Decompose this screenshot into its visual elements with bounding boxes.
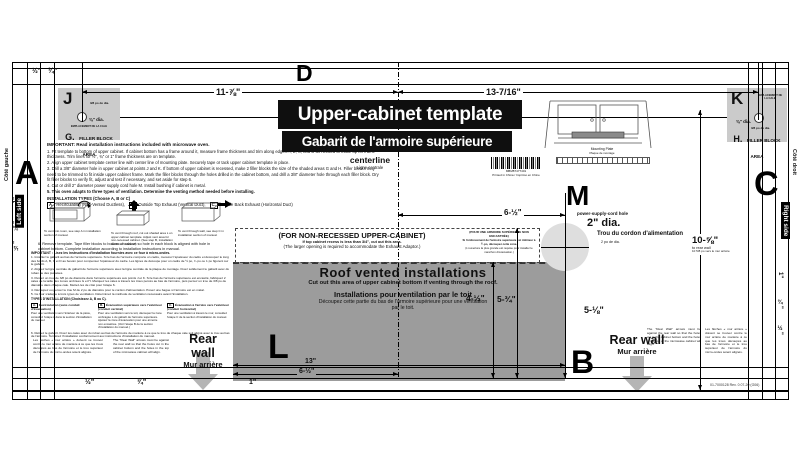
- point-m-letter: M: [566, 182, 588, 210]
- template-title-fr: Gabarit de l'armoire supérieure: [282, 131, 512, 152]
- trim-line: [12, 62, 13, 400]
- to-rear-wall-dim: 10-⅝" to rear wall 10 5/8 po vers le mur…: [691, 234, 731, 255]
- trim-line: [12, 62, 788, 63]
- arrowhead: [698, 110, 702, 115]
- type-fr-c: C. Évacuation à l'arrière vers l'extérie…: [167, 303, 229, 330]
- trim-line: [54, 62, 55, 400]
- trim-left-1-label: 1": [13, 197, 19, 203]
- power-cord-hole-label-fr: Trou du cordon d'alimentation: [597, 231, 689, 237]
- arrowhead: [233, 363, 238, 367]
- instructions-french: IMPORTANT : Lisez les instructions d'ins…: [31, 251, 231, 340]
- rear-note-en-left: The "Rear Wall" arrows must be against t…: [113, 339, 169, 354]
- trim-bottom-12-label: ½": [85, 379, 94, 386]
- instruction-step-4: 4. Cut or drill 2" diameter power supply…: [47, 183, 379, 188]
- installation-types-fr-row: A. Recirculation (sans conduit d'évacuat…: [31, 303, 231, 330]
- j-dia-fr: 3/8 po de dia.: [90, 101, 117, 105]
- rear-wall-line: [12, 390, 788, 392]
- mounting-plate-label-fr: Plaque de montage: [572, 151, 632, 155]
- to-rear-wall-fr: 10 5/8 po vers le mur arrière: [692, 250, 730, 254]
- mounting-plate-ruler: [556, 157, 650, 164]
- trim-line: [762, 62, 763, 400]
- edge-c-letter: C: [754, 167, 778, 201]
- filler-block-area-g: J 3/8 po de dia. ⅜" dia. EMPLACEMENT DE …: [58, 88, 120, 140]
- type-fr-b: B. Évacuation supérieure vers l'extérieu…: [98, 303, 162, 330]
- back-exhaust-vent-icon: [178, 200, 234, 224]
- rear-wall-arrow-right-stem: [630, 356, 644, 376]
- trim-top-threequarter-label: ¾": [46, 68, 59, 75]
- trim-line: [12, 399, 788, 400]
- k-hole-line: [758, 63, 759, 120]
- non-recessed-en-line2: (The larger opening is required to accom…: [246, 244, 458, 249]
- k-filler-area-label: H. FILLER BLOCK AREA: [728, 130, 786, 162]
- instruction-step-2: 2. Align upper cabinet template center l…: [47, 160, 379, 165]
- arrowhead: [82, 90, 87, 94]
- arrowhead: [491, 373, 495, 378]
- trim-line: [40, 62, 41, 400]
- rear-note-fr-left: Les flèches « mur arrière » doivent se t…: [33, 339, 103, 354]
- rear-note-fr-right: Les flèches « mur arrière » doivent se t…: [705, 328, 747, 355]
- non-recessed-fr-line1: Si l'enfoncement de l'armoire supérieure…: [462, 238, 536, 246]
- arrowhead: [393, 372, 398, 376]
- dim-line-6-12-top: [398, 215, 565, 216]
- rear-wall-left-fr: Mur arrière: [176, 361, 230, 369]
- cord-hole-vertical-line: [565, 193, 566, 378]
- trim-top-half-label: ½": [30, 68, 43, 75]
- dim-6-12-top-label: 6-½": [502, 208, 524, 217]
- trim-line: [12, 367, 788, 368]
- area-g-letter: G.: [65, 132, 75, 142]
- non-recessed-en-title: (FOR NON-RECESSED UPPER-CABINET): [246, 231, 458, 240]
- cabinet-mounting-plate-figure: [542, 96, 654, 152]
- arrowhead: [515, 373, 519, 378]
- rear-wall-arrow-left-icon: [188, 374, 218, 390]
- mounting-plate-label: Mounting Plate Plaque de montage: [572, 147, 632, 155]
- arrowhead: [398, 213, 403, 217]
- trim-right-12-label: ½": [777, 326, 783, 335]
- rear-wall-right-en: Rear wall: [608, 334, 666, 348]
- power-cord-hole-dia-en: 2" dia.: [587, 217, 620, 229]
- dim-6-12-bottom-label: 6-½": [297, 368, 316, 375]
- upper-cabinet-template-sheet: J 3/8 po de dia. ⅜" dia. EMPLACEMENT DE …: [0, 0, 802, 452]
- side-label-right-side: Right side: [781, 202, 790, 239]
- vent-wall-figure: To vent through wall, see step C in inst…: [178, 200, 236, 246]
- dim-13-label: 13": [303, 358, 318, 365]
- roof-vent-sub-fr: Découpez cette partie du bas de l'armoir…: [318, 299, 488, 311]
- trim-line: [12, 68, 788, 69]
- trim-right-1-label: 1": [777, 272, 783, 278]
- trim-line: [775, 62, 776, 400]
- recirculating-vent-icon: [44, 200, 100, 224]
- side-label-cote-gauche: Côté gauche: [4, 148, 10, 181]
- arrowhead: [698, 385, 702, 390]
- centerline-label-fr: Ligne centrale: [338, 165, 402, 170]
- cord-hole-cross-line: [541, 247, 589, 248]
- area-h-letter: H.: [733, 134, 742, 144]
- arrowhead: [515, 228, 519, 233]
- rear-wall-label-left: Rear wall Mur arrière: [176, 333, 230, 369]
- instruction-fr-step-3: 3. Percez un trou de 3/8 po de diamètre …: [31, 277, 231, 288]
- dim-5-18-label: 5-⅛": [584, 305, 604, 315]
- trim-line: [27, 62, 28, 400]
- dim-13-716-label: 13-7/16": [484, 87, 523, 97]
- trim-bottom-34-label: ¾": [137, 379, 146, 386]
- power-cord-hole-dia-fr: 2 po de dia.: [601, 240, 620, 244]
- non-recessed-en: (FOR NON-RECESSED UPPER-CABINET) If top …: [246, 231, 458, 249]
- trim-left-12-label: ½": [13, 241, 19, 250]
- arrowhead: [563, 373, 567, 378]
- edge-d-letter: D: [296, 62, 312, 85]
- roof-vent-title-en: Roof vented installations: [263, 265, 543, 280]
- trim-line: [748, 62, 749, 400]
- vent-figures-row: To vent into room, see step A in install…: [44, 200, 236, 246]
- vent-roof-figure: To vent through roof, cut out shaded are…: [111, 200, 173, 246]
- arrowhead: [233, 372, 238, 376]
- k-cale-label: EMPLACEMENT DE LA CALE: [757, 94, 783, 100]
- rear-wall-right-fr: Mur arrière: [608, 348, 666, 356]
- trim-line: [12, 84, 788, 85]
- side-label-cote-droit: Côté droit: [791, 149, 797, 175]
- trim-left-34-label: ¾": [13, 221, 19, 230]
- rear-wall-left-en: Rear wall: [176, 333, 230, 361]
- arrowhead: [560, 363, 565, 367]
- installation-types-fr-heading: TYPES D'INSTALLATION (Choisissez A, B ou…: [31, 298, 231, 302]
- j-dia-en: ⅜" dia.: [89, 117, 104, 122]
- non-recessed-fr: (POUR UNE ARMOIRE SUPÉRIEURE NON ENCASTR…: [462, 230, 536, 254]
- filler-block-area-h: K EMPLACEMENT DE LA CALE ⅜" dia. 3/8 po …: [727, 88, 787, 142]
- instruction-step-3: 3. Drill a 3/8" diameter hole in upper c…: [47, 166, 379, 182]
- vent-caption-wall: To vent through wall, see step C in inst…: [178, 230, 236, 237]
- arrowhead: [398, 90, 403, 94]
- barcode: [491, 157, 541, 169]
- edge-b-letter: B: [571, 346, 593, 378]
- type-fr-c-body: Pour une ventilation à travers le mur, c…: [167, 312, 229, 319]
- rear-wall-label-right: Rear wall Mur arrière: [608, 334, 666, 356]
- non-recessed-cutout-box: (FOR NON-RECESSED UPPER-CABINET) If top …: [235, 228, 540, 263]
- non-recessed-fr-title: (POUR UNE ARMOIRE SUPÉRIEURE NON ENCASTR…: [462, 230, 536, 238]
- instruction-step-5: 5. This oven adapts to three types of ve…: [47, 189, 379, 194]
- centerline-label: centerline Ligne centrale: [338, 155, 402, 170]
- trim-line: [12, 378, 788, 379]
- area-l-letter: L: [268, 330, 288, 364]
- dim-4-12-label: 4-½": [466, 293, 485, 303]
- trim-bottom-1-label: 1": [249, 379, 256, 386]
- roof-vent-text: Roof vented installations Cut out this a…: [263, 265, 543, 311]
- trim-right-34-label: ¾": [777, 300, 783, 309]
- printed-in-china-label: Printed in China / Imprimé en Chine: [481, 173, 551, 177]
- to-rear-wall-value: 10-⅝": [692, 235, 730, 246]
- arrowhead: [753, 90, 758, 94]
- dim-11-78-label: 11-⅞": [214, 87, 242, 97]
- type-fr-b-body: Pour une ventilation vers le toit, décou…: [98, 312, 162, 329]
- instruction-fr-step-1: 1. Installez le gabarit au bas de l'armo…: [31, 256, 231, 267]
- template-title-en: Upper-cabinet template: [278, 100, 522, 129]
- dim-line-13-716: [398, 92, 758, 93]
- power-cord-hole-label-en: power-supply-cord hole: [577, 211, 628, 216]
- roof-vent-sub-en: Cut out this area of upper cabinet botto…: [263, 280, 543, 286]
- instruction-fr-step-2: 2. Alignez la ligne centrale du gabarit …: [31, 268, 231, 275]
- arrowhead: [560, 213, 565, 217]
- top-exhaust-vent-icon: [111, 200, 155, 226]
- point-j-letter: J: [63, 89, 72, 109]
- centerline-label-en: centerline: [338, 155, 402, 165]
- dim-5-34-label: 5-¾": [497, 294, 516, 304]
- non-recessed-fr-line2: (L'ouverture la plus grande est requise …: [462, 246, 536, 254]
- edge-a-letter: A: [15, 156, 38, 189]
- part-number: 01-7000128 Rev. 0 07-20 (G06): [710, 383, 759, 387]
